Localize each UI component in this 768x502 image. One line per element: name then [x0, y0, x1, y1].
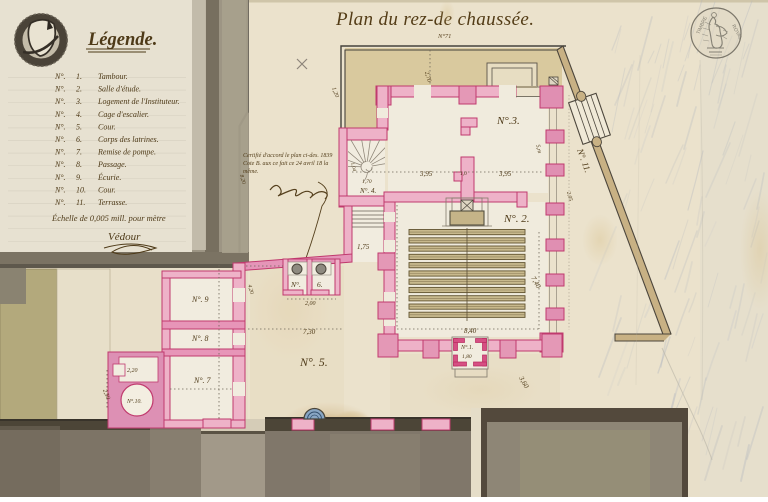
svg-text:N°.: N°.: [54, 72, 66, 81]
svg-text:7,30: 7,30: [303, 328, 316, 336]
svg-text:1,75: 1,75: [357, 243, 370, 251]
svg-text:Remise de pompe.: Remise de pompe.: [97, 148, 156, 157]
svg-text:2,20: 2,20: [127, 368, 138, 374]
svg-text:N°.: N°.: [54, 135, 66, 144]
svg-text:1.: 1.: [76, 72, 82, 81]
svg-text:Cour.: Cour.: [98, 185, 116, 194]
svg-text:Védour: Védour: [108, 231, 141, 243]
svg-text:6.: 6.: [317, 280, 323, 289]
svg-text:10.: 10.: [76, 185, 86, 194]
svg-text:N°.: N°.: [290, 280, 301, 289]
svg-text:N°71: N°71: [437, 33, 451, 40]
svg-text:N°.: N°.: [54, 110, 66, 119]
svg-text:même.: même.: [243, 169, 259, 175]
svg-text:N°.: N°.: [54, 185, 66, 194]
svg-text:Logement de l'Instituteur.: Logement de l'Instituteur.: [97, 97, 179, 106]
svg-text:Cour.: Cour.: [98, 122, 116, 131]
svg-text:Plan du rez-de chaussée.: Plan du rez-de chaussée.: [335, 9, 534, 30]
svg-text:Corps des latrines.: Corps des latrines.: [98, 135, 159, 144]
svg-text:N°. 5.: N°. 5.: [299, 355, 328, 369]
svg-text:7.: 7.: [76, 148, 82, 157]
svg-text:2,00: 2,00: [305, 301, 316, 307]
svg-text:N°.: N°.: [54, 97, 66, 106]
svg-text:6.: 6.: [76, 135, 82, 144]
svg-text:Terrasse.: Terrasse.: [98, 198, 127, 207]
svg-text:1,80: 1,80: [462, 354, 472, 360]
svg-text:N°. 7: N°. 7: [193, 376, 212, 385]
svg-text:N°. 4.: N°. 4.: [359, 187, 376, 195]
svg-text:1,0: 1,0: [460, 171, 467, 177]
svg-text:N°.: N°.: [54, 198, 66, 207]
svg-text:Cage d'escalier.: Cage d'escalier.: [98, 110, 149, 119]
svg-text:1,70: 1,70: [362, 179, 372, 185]
svg-text:N°.: N°.: [54, 160, 66, 169]
svg-text:3,95: 3,95: [419, 170, 433, 178]
svg-text:Écurie.: Écurie.: [97, 172, 121, 182]
svg-text:8,40: 8,40: [464, 327, 477, 335]
svg-text:N°.: N°.: [54, 122, 66, 131]
svg-text:11.: 11.: [76, 198, 85, 207]
svg-text:Légende.: Légende.: [87, 30, 157, 50]
svg-text:Certifié d'accord le plan ci-d: Certifié d'accord le plan ci-des. 1839: [243, 152, 332, 159]
svg-text:Salle d'étude.: Salle d'étude.: [98, 85, 141, 94]
svg-text:Passage.: Passage.: [97, 160, 127, 169]
svg-text:Tambour.: Tambour.: [98, 72, 128, 81]
svg-text:N°.10.: N°.10.: [126, 398, 142, 405]
svg-text:4.: 4.: [76, 110, 82, 119]
svg-text:3.: 3.: [75, 97, 82, 106]
svg-text:3,95: 3,95: [498, 170, 512, 178]
svg-text:N°.3.: N°.3.: [496, 115, 520, 127]
svg-text:2.: 2.: [76, 85, 82, 94]
svg-text:Cote B. aux ce fait ce 24 avri: Cote B. aux ce fait ce 24 avril 18 la: [243, 160, 328, 167]
svg-text:5.: 5.: [76, 122, 82, 131]
svg-text:N°.1.: N°.1.: [460, 344, 473, 351]
svg-text:Échelle de 0,005 mill. pour mè: Échelle de 0,005 mill. pour mètre: [51, 213, 166, 223]
svg-text:9.: 9.: [76, 173, 82, 182]
svg-text:N°.: N°.: [54, 148, 66, 157]
svg-text:N°. 9: N°. 9: [191, 295, 209, 304]
svg-text:8.: 8.: [76, 160, 82, 169]
svg-text:N°. 2.: N°. 2.: [503, 213, 530, 225]
svg-text:N°.: N°.: [54, 85, 66, 94]
svg-text:N°.: N°.: [54, 173, 66, 182]
svg-text:N°. 8: N°. 8: [191, 334, 209, 343]
